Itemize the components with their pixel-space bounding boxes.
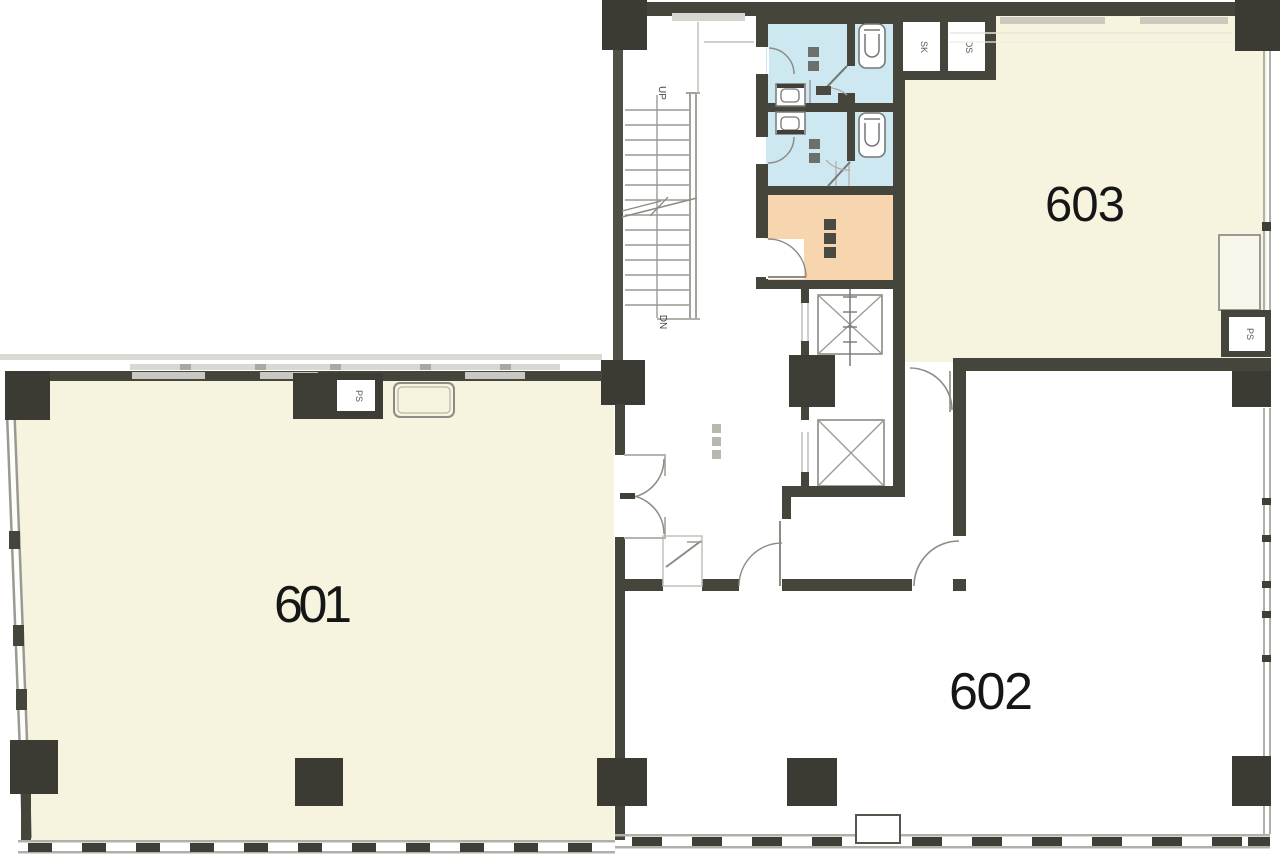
svg-text:UP: UP xyxy=(656,86,667,100)
svg-text:PS: PS xyxy=(354,390,364,402)
svg-text:601: 601 xyxy=(274,576,352,634)
svg-text:PS: PS xyxy=(1245,328,1255,340)
svg-text:DN: DN xyxy=(657,315,668,329)
svg-text:SK: SK xyxy=(919,41,929,53)
svg-text:603: 603 xyxy=(1045,178,1125,232)
svg-text:602: 602 xyxy=(949,663,1033,721)
svg-text:DS: DS xyxy=(964,41,974,54)
